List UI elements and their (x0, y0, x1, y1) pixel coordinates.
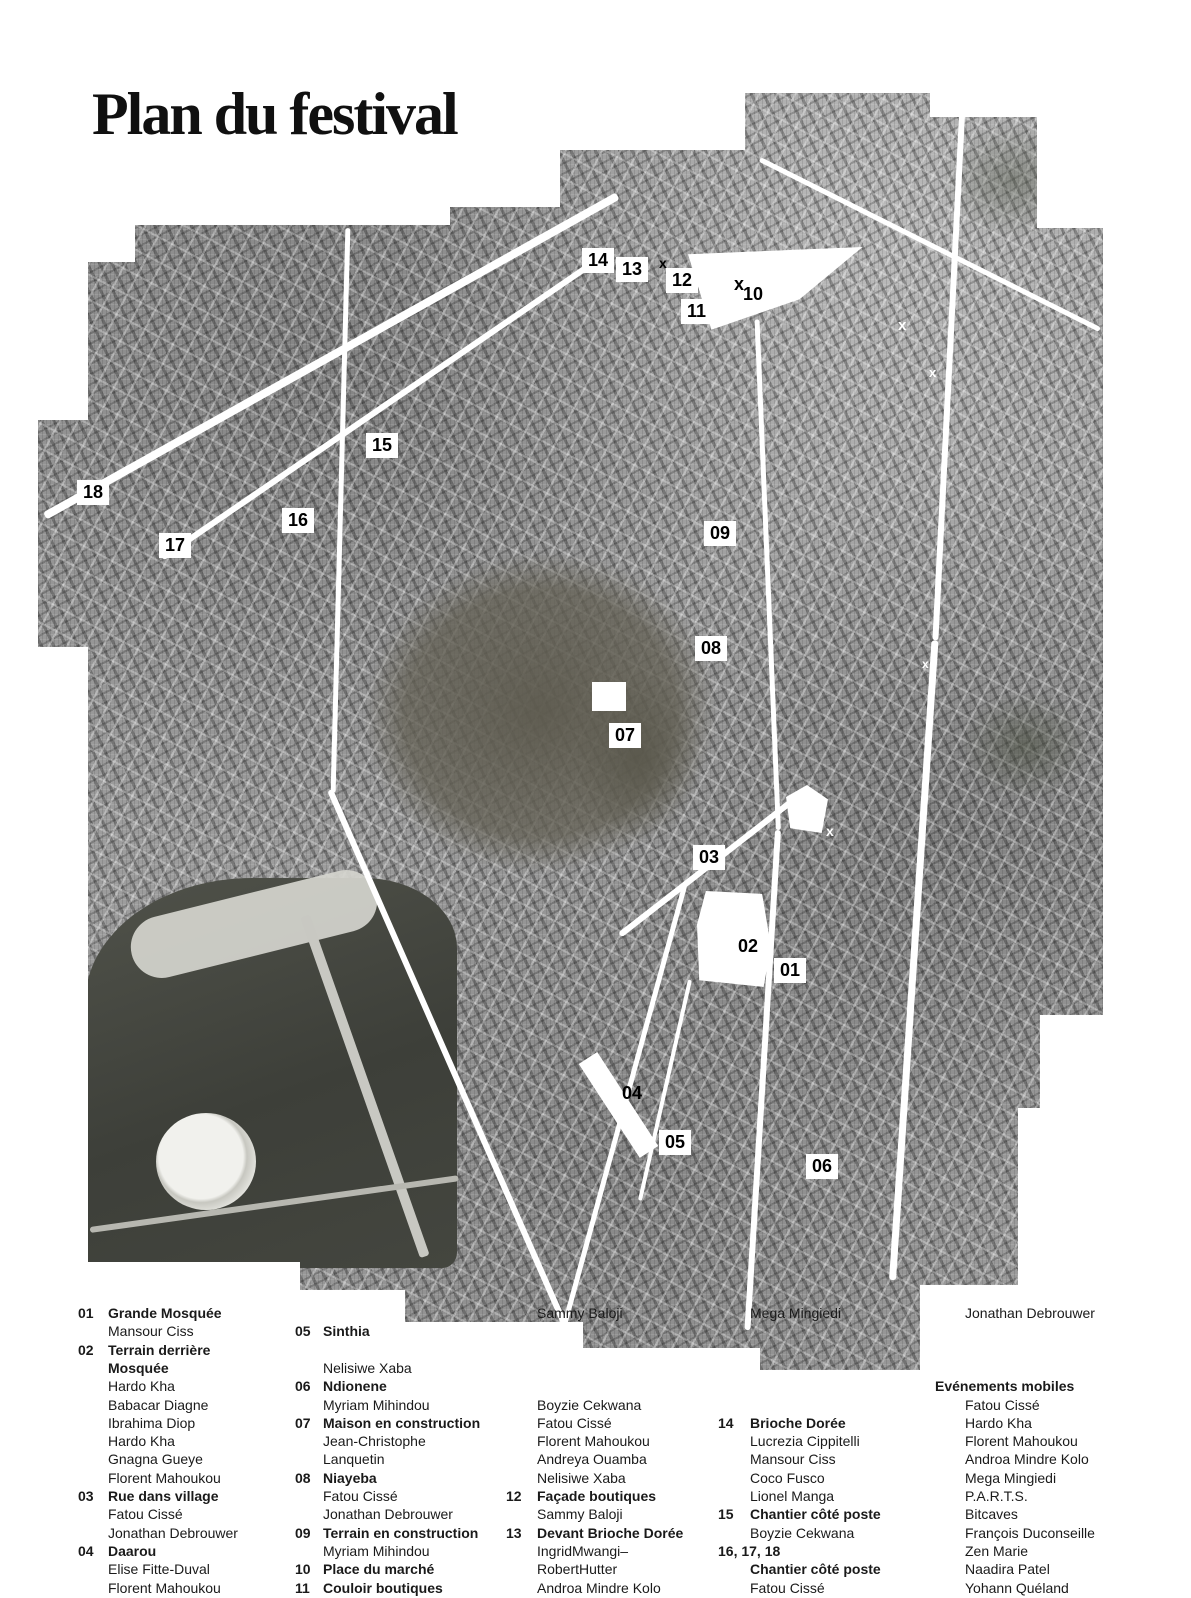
legend-artist-name: Androa Mindre Kolo (965, 1450, 1089, 1468)
legend-artist-name: Sammy Baloji (537, 1304, 623, 1322)
legend-artist-name: Yohann Quéland (965, 1579, 1069, 1597)
map-marker-06: 06 (806, 1154, 838, 1179)
legend-entry-title: Niayeba (323, 1469, 377, 1487)
legend-artist-name: Lionel Manga (750, 1487, 834, 1505)
legend-artist-name: RobertHutter (537, 1560, 617, 1578)
legend-artist-name: Florent Mahoukou (108, 1579, 221, 1597)
legend-artist-name: Jonathan Debrouwer (965, 1304, 1095, 1322)
legend-artist-name: Bitcaves (965, 1505, 1018, 1523)
legend-column-5: Jonathan DebrouwerEvénements mobilesFato… (965, 1304, 1191, 1598)
legend-artist-name: Fatou Cissé (323, 1487, 398, 1505)
legend-artist-name: Naadira Patel (965, 1560, 1050, 1578)
map-marker-13: 13 (616, 257, 648, 282)
legend-artist-name: Mega Mingiedi (750, 1304, 841, 1322)
map-marker-15: 15 (366, 433, 398, 458)
map-open-field-2 (553, 640, 723, 875)
legend-entry-title: Maison en construction (323, 1414, 480, 1432)
legend-artist-name: Florent Mahoukou (965, 1432, 1078, 1450)
map-marker-02: 02 (738, 936, 758, 956)
festival-map (38, 85, 1103, 1370)
map-marker-18: 18 (77, 480, 109, 505)
legend-artist-name: Jonathan Debrouwer (108, 1524, 238, 1542)
map-x-mark: x (659, 256, 667, 270)
legend-artist-name: Babacar Diagne (108, 1396, 208, 1414)
legend-entry-number: 11 (295, 1579, 310, 1597)
legend-entry-number: 09 (295, 1524, 311, 1542)
legend-artist-name: IngridMwangi– (537, 1542, 628, 1560)
map-marker-10: 10 (743, 284, 763, 304)
legend-entry-title: Chantier côté poste (750, 1505, 881, 1523)
legend-artist-name: Boyzie Cekwana (750, 1524, 854, 1542)
legend-entry-title: Evénements mobiles (935, 1377, 1074, 1395)
map-marker-12: 12 (666, 268, 698, 293)
legend-entry-title: Sinthia (323, 1322, 370, 1340)
legend-artist-name: Androa Mindre Kolo (537, 1579, 661, 1597)
legend-artist-name: Gnagna Gueye (108, 1450, 203, 1468)
legend-entry-number: 13 (506, 1524, 522, 1542)
map-x-mark: x (929, 366, 936, 379)
legend-entry-title: Ndionene (323, 1377, 387, 1395)
legend-entry-title: Façade boutiques (537, 1487, 656, 1505)
legend-artist-name: Florent Mahoukou (537, 1432, 650, 1450)
map-house-07 (592, 682, 626, 711)
map-marker-11: 11 (681, 299, 712, 324)
legend-column-1: 01Grande MosquéeMansour Ciss02Terrain de… (78, 1304, 308, 1598)
legend-artist-name: Lucrezia Cippitelli (750, 1432, 860, 1450)
legend-column-2: 05SinthiaNelisiwe Xaba06NdioneneMyriam M… (295, 1304, 525, 1598)
map-marker-09: 09 (704, 521, 736, 546)
legend-artist-name: P.A.R.T.S. (965, 1487, 1028, 1505)
legend-entry-number: 06 (295, 1377, 311, 1395)
legend-entry-number: 14 (718, 1414, 734, 1432)
map-marker-17: 17 (159, 533, 191, 558)
legend-entry-number: 10 (295, 1560, 311, 1578)
legend-artist-name: Jean-Christophe (323, 1432, 426, 1450)
legend-entry-title: Place du marché (323, 1560, 434, 1578)
legend-entry-number: 04 (78, 1542, 94, 1560)
legend-entry-number: 03 (78, 1487, 94, 1505)
map-x-mark: x (922, 658, 929, 670)
legend-artist-name: Ibrahima Diop (108, 1414, 195, 1432)
legend-entry-title: Grande Mosquée (108, 1304, 222, 1322)
legend-entry-number: 02 (78, 1341, 94, 1359)
legend-artist-name: Jonathan Debrouwer (323, 1505, 453, 1523)
legend-entry-number: 01 (78, 1304, 94, 1322)
legend-artist-name: Sammy Baloji (537, 1505, 623, 1523)
legend-artist-name: Myriam Mihindou (323, 1542, 430, 1560)
legend-entry-title: Brioche Dorée (750, 1414, 846, 1432)
legend-entry-title: Devant Brioche Dorée (537, 1524, 683, 1542)
legend-entry-number: 05 (295, 1322, 311, 1340)
map-amphitheatre (156, 1113, 256, 1210)
legend-artist-name: Hardo Kha (965, 1414, 1032, 1432)
map-marker-04: 04 (622, 1083, 642, 1103)
legend-artist-name: Boyzie Cekwana (537, 1396, 641, 1414)
map-marker-03: 03 (693, 845, 725, 870)
map-marker-08: 08 (695, 636, 727, 661)
legend-column-4: Mega Mingiedi14Brioche DoréeLucrezia Cip… (718, 1304, 948, 1598)
legend-entry-title: Couloir boutiques (323, 1579, 443, 1597)
legend-entry-title: Chantier côté poste (750, 1560, 881, 1578)
legend-artist-name: Fatou Cissé (750, 1579, 825, 1597)
legend-artist-name: Nelisiwe Xaba (537, 1469, 626, 1487)
map-marker-07: 07 (609, 723, 641, 748)
legend-entry-number: 15 (718, 1505, 734, 1523)
legend-column-3: Sammy BalojiBoyzie CekwanaFatou CisséFlo… (506, 1304, 736, 1598)
legend-artist-name: Lanquetin (323, 1450, 385, 1468)
legend-artist-name: Fatou Cissé (965, 1396, 1040, 1414)
legend-artist-name: Hardo Kha (108, 1377, 175, 1395)
map-marker-14: 14 (582, 248, 614, 273)
map-marker-01: 01 (774, 958, 806, 983)
legend-entry-number: 16, 17, 18 (718, 1542, 780, 1560)
map-x-mark: x (898, 318, 906, 333)
legend-artist-name: Mansour Ciss (108, 1322, 194, 1340)
legend-artist-name: Mansour Ciss (750, 1450, 836, 1468)
legend-artist-name: Andreya Ouamba (537, 1450, 647, 1468)
legend-entry-title: Terrain en construction (323, 1524, 478, 1542)
legend-entry-title: Terrain derrière (108, 1341, 210, 1359)
legend-entry-title: Rue dans village (108, 1487, 218, 1505)
legend-entry-number: 07 (295, 1414, 311, 1432)
legend-artist-name: Mega Mingiedi (965, 1469, 1056, 1487)
legend-entry-title: Mosquée (108, 1359, 169, 1377)
map-marker-16: 16 (282, 508, 314, 533)
legend-entry-number: 08 (295, 1469, 311, 1487)
page-title: Plan du festival (92, 80, 457, 149)
map-x-mark: x (826, 824, 834, 838)
legend-artist-name: Myriam Mihindou (323, 1396, 430, 1414)
legend-artist-name: Elise Fitte-Duval (108, 1560, 210, 1578)
legend-artist-name: Zen Marie (965, 1542, 1028, 1560)
map-trees-topright (916, 103, 1111, 258)
legend-artist-name: Coco Fusco (750, 1469, 825, 1487)
map-marker-05: 05 (659, 1130, 691, 1155)
map-mosque-02 (697, 891, 771, 987)
legend-artist-name: Florent Mahoukou (108, 1469, 221, 1487)
legend-entry-number: 12 (506, 1487, 522, 1505)
legend-artist-name: Hardo Kha (108, 1432, 175, 1450)
legend-artist-name: Fatou Cissé (108, 1505, 183, 1523)
map-trees-right (938, 673, 1113, 818)
map-x-mark: x (734, 275, 744, 293)
legend-entry-title: Daarou (108, 1542, 156, 1560)
legend-artist-name: Fatou Cissé (537, 1414, 612, 1432)
legend-artist-name: Nelisiwe Xaba (323, 1359, 412, 1377)
legend-artist-name: François Duconseille (965, 1524, 1095, 1542)
